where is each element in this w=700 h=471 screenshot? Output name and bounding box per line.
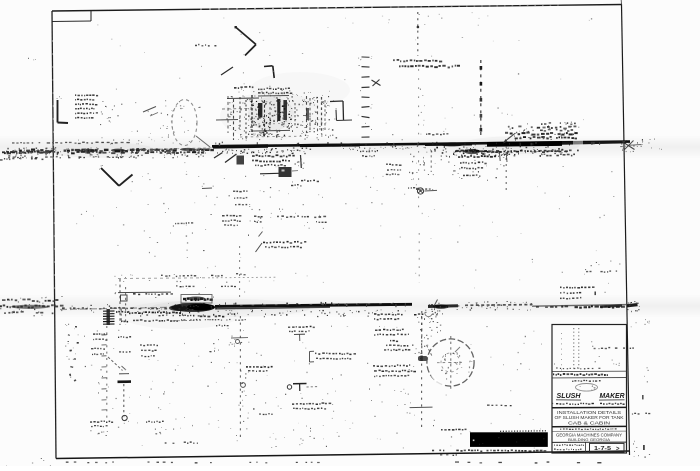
- svg-text:INSTALLATION DETAILS: INSTALLATION DETAILS: [557, 410, 621, 415]
- svg-text:>: >: [616, 447, 620, 453]
- svg-text:SLUSH: SLUSH: [557, 393, 582, 400]
- svg-text:MAKER: MAKER: [600, 393, 625, 400]
- svg-text:CAB & CABIN: CAB & CABIN: [568, 420, 610, 425]
- svg-text:BUILDING GEORGIA: BUILDING GEORGIA: [568, 437, 610, 442]
- svg-text:1-7-5: 1-7-5: [594, 446, 611, 452]
